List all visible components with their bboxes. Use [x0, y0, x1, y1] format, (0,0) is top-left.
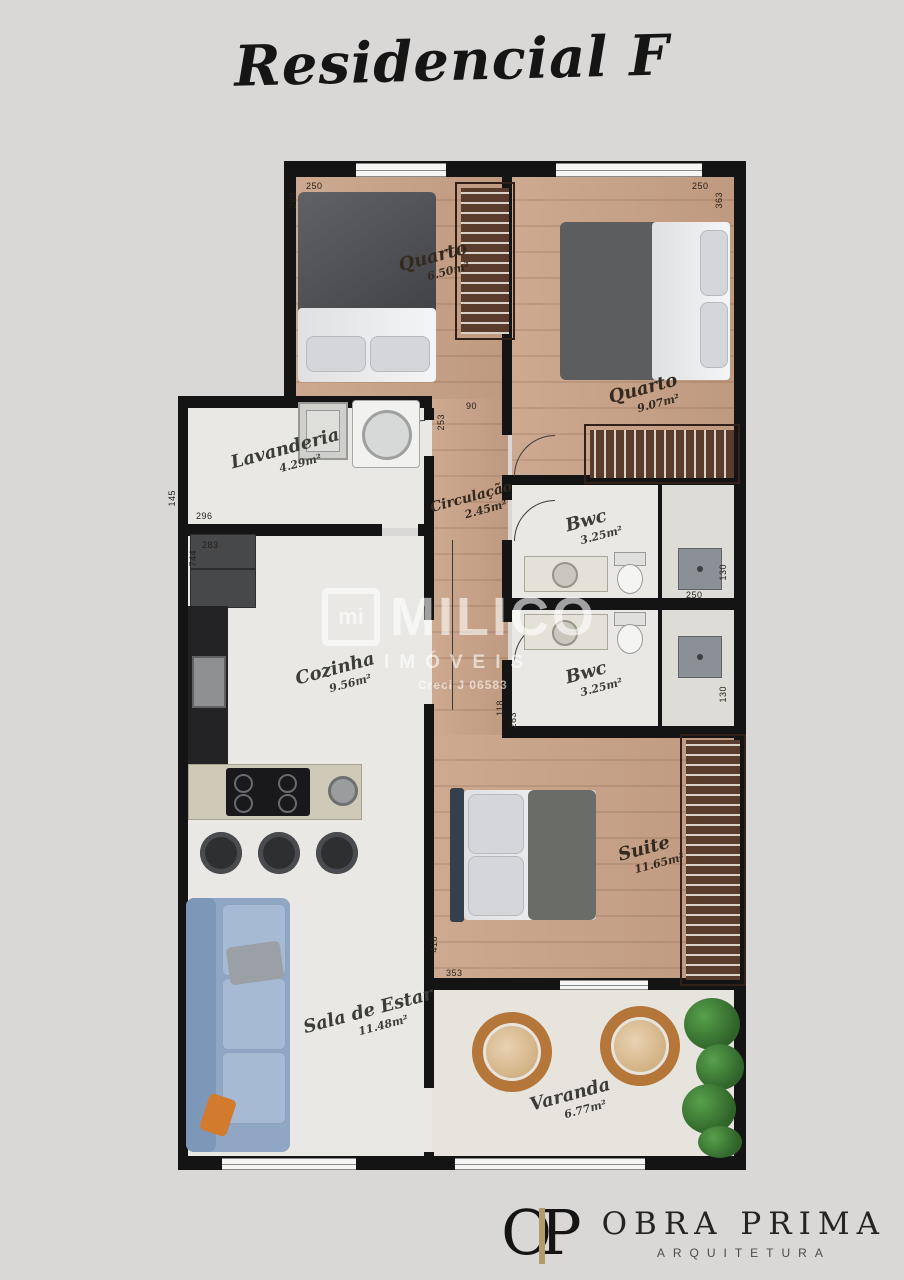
- dim-lavanderia-width: 296: [196, 511, 213, 521]
- watermark-subtitle: IMÓVEIS: [384, 652, 612, 674]
- dim-suite-width: 353: [446, 968, 463, 978]
- pillow-icon: [700, 302, 728, 368]
- company-tagline: ARQUITETURA: [657, 1246, 831, 1260]
- obra-prima-monogram-icon: OP: [501, 1202, 584, 1264]
- dim-bwc2-height: 130: [718, 686, 728, 703]
- footer-branding: OP OBRA PRIMA ARQUITETURA: [501, 1202, 886, 1264]
- island-sink-icon: [328, 776, 358, 806]
- toilet-icon-bwc2: [617, 624, 643, 654]
- pillow-icon: [306, 336, 366, 372]
- plant-icon: [698, 1126, 742, 1158]
- window-varanda: [455, 1158, 645, 1170]
- toilet-icon-bwc1: [617, 564, 643, 594]
- stool-icon: [316, 832, 358, 874]
- shower-icon-bwc2: [678, 636, 722, 678]
- pillow-icon: [370, 336, 430, 372]
- wall-lavanderia-bottom-stub: [418, 524, 432, 536]
- washer-drum-icon: [362, 410, 412, 460]
- burner-icon: [234, 794, 253, 813]
- window-sala: [222, 1158, 356, 1170]
- chair-cushion-icon: [614, 1020, 666, 1072]
- dim-circulacao-width: 90: [466, 401, 477, 411]
- gold-bar-icon: [539, 1208, 545, 1264]
- stool-icon: [200, 832, 242, 874]
- stove-icon: [226, 768, 310, 816]
- door-suite-varanda: [560, 980, 648, 990]
- page-title: Residencial F: [0, 16, 904, 106]
- wall-corridor-right-a: [502, 399, 512, 435]
- dim-suite-height: 418: [429, 936, 439, 953]
- wall-shower2-partition: [658, 610, 662, 726]
- burner-icon: [278, 774, 297, 793]
- dim-bwc2-left-width: 263: [508, 712, 518, 729]
- kitchen-sink-icon: [192, 656, 226, 708]
- headboard-icon-suite: [450, 788, 464, 922]
- pillow-icon: [468, 856, 524, 916]
- dim-cozinha-height: 744: [188, 550, 198, 567]
- watermark: mi MILICO IMÓVEIS Creci J 06583: [322, 588, 612, 692]
- dim-quarto2-width: 250: [692, 181, 709, 191]
- burner-icon: [278, 794, 297, 813]
- pillow-icon: [468, 794, 524, 854]
- wall-corridor-left-a: [424, 408, 434, 420]
- wardrobe-icon-quarto2: [584, 424, 740, 484]
- sofa-cushion-icon: [222, 978, 286, 1050]
- dim-bwc2-left-height: 118: [495, 700, 505, 716]
- throw-blanket-icon: [226, 940, 285, 985]
- milico-logo-icon: mi: [322, 588, 380, 646]
- company-name: OBRA PRIMA: [602, 1206, 886, 1242]
- pillow-icon: [700, 230, 728, 296]
- dim-bwc1-height: 130: [718, 564, 728, 581]
- dim-cozinha-width: 283: [202, 540, 219, 550]
- fridge-icon: [190, 534, 256, 608]
- chair-cushion-icon: [486, 1026, 538, 1078]
- plant-icon: [684, 998, 740, 1050]
- dim-lavanderia-height: 145: [167, 490, 177, 507]
- window-quarto1: [356, 163, 446, 177]
- dim-quarto1-width: 250: [306, 181, 323, 191]
- dim-quarto2-height: 363: [714, 192, 724, 209]
- dim-bwc1-width: 250: [686, 590, 703, 600]
- wall-shower1-partition: [658, 484, 662, 602]
- dim-quarto1-height: 260: [288, 192, 298, 209]
- watermark-brand: MILICO: [390, 590, 597, 644]
- watermark-license: Creci J 06583: [418, 678, 612, 692]
- plant-icon: [696, 1044, 744, 1090]
- blanket-icon-suite: [528, 790, 596, 920]
- dim-circulacao-height: 253: [436, 414, 446, 431]
- stool-icon: [258, 832, 300, 874]
- wall-sala-varanda-b: [424, 1152, 434, 1170]
- burner-icon: [234, 774, 253, 793]
- window-quarto2: [556, 163, 702, 177]
- shower-icon-bwc1: [678, 548, 722, 590]
- basin-icon-bwc1: [552, 562, 578, 588]
